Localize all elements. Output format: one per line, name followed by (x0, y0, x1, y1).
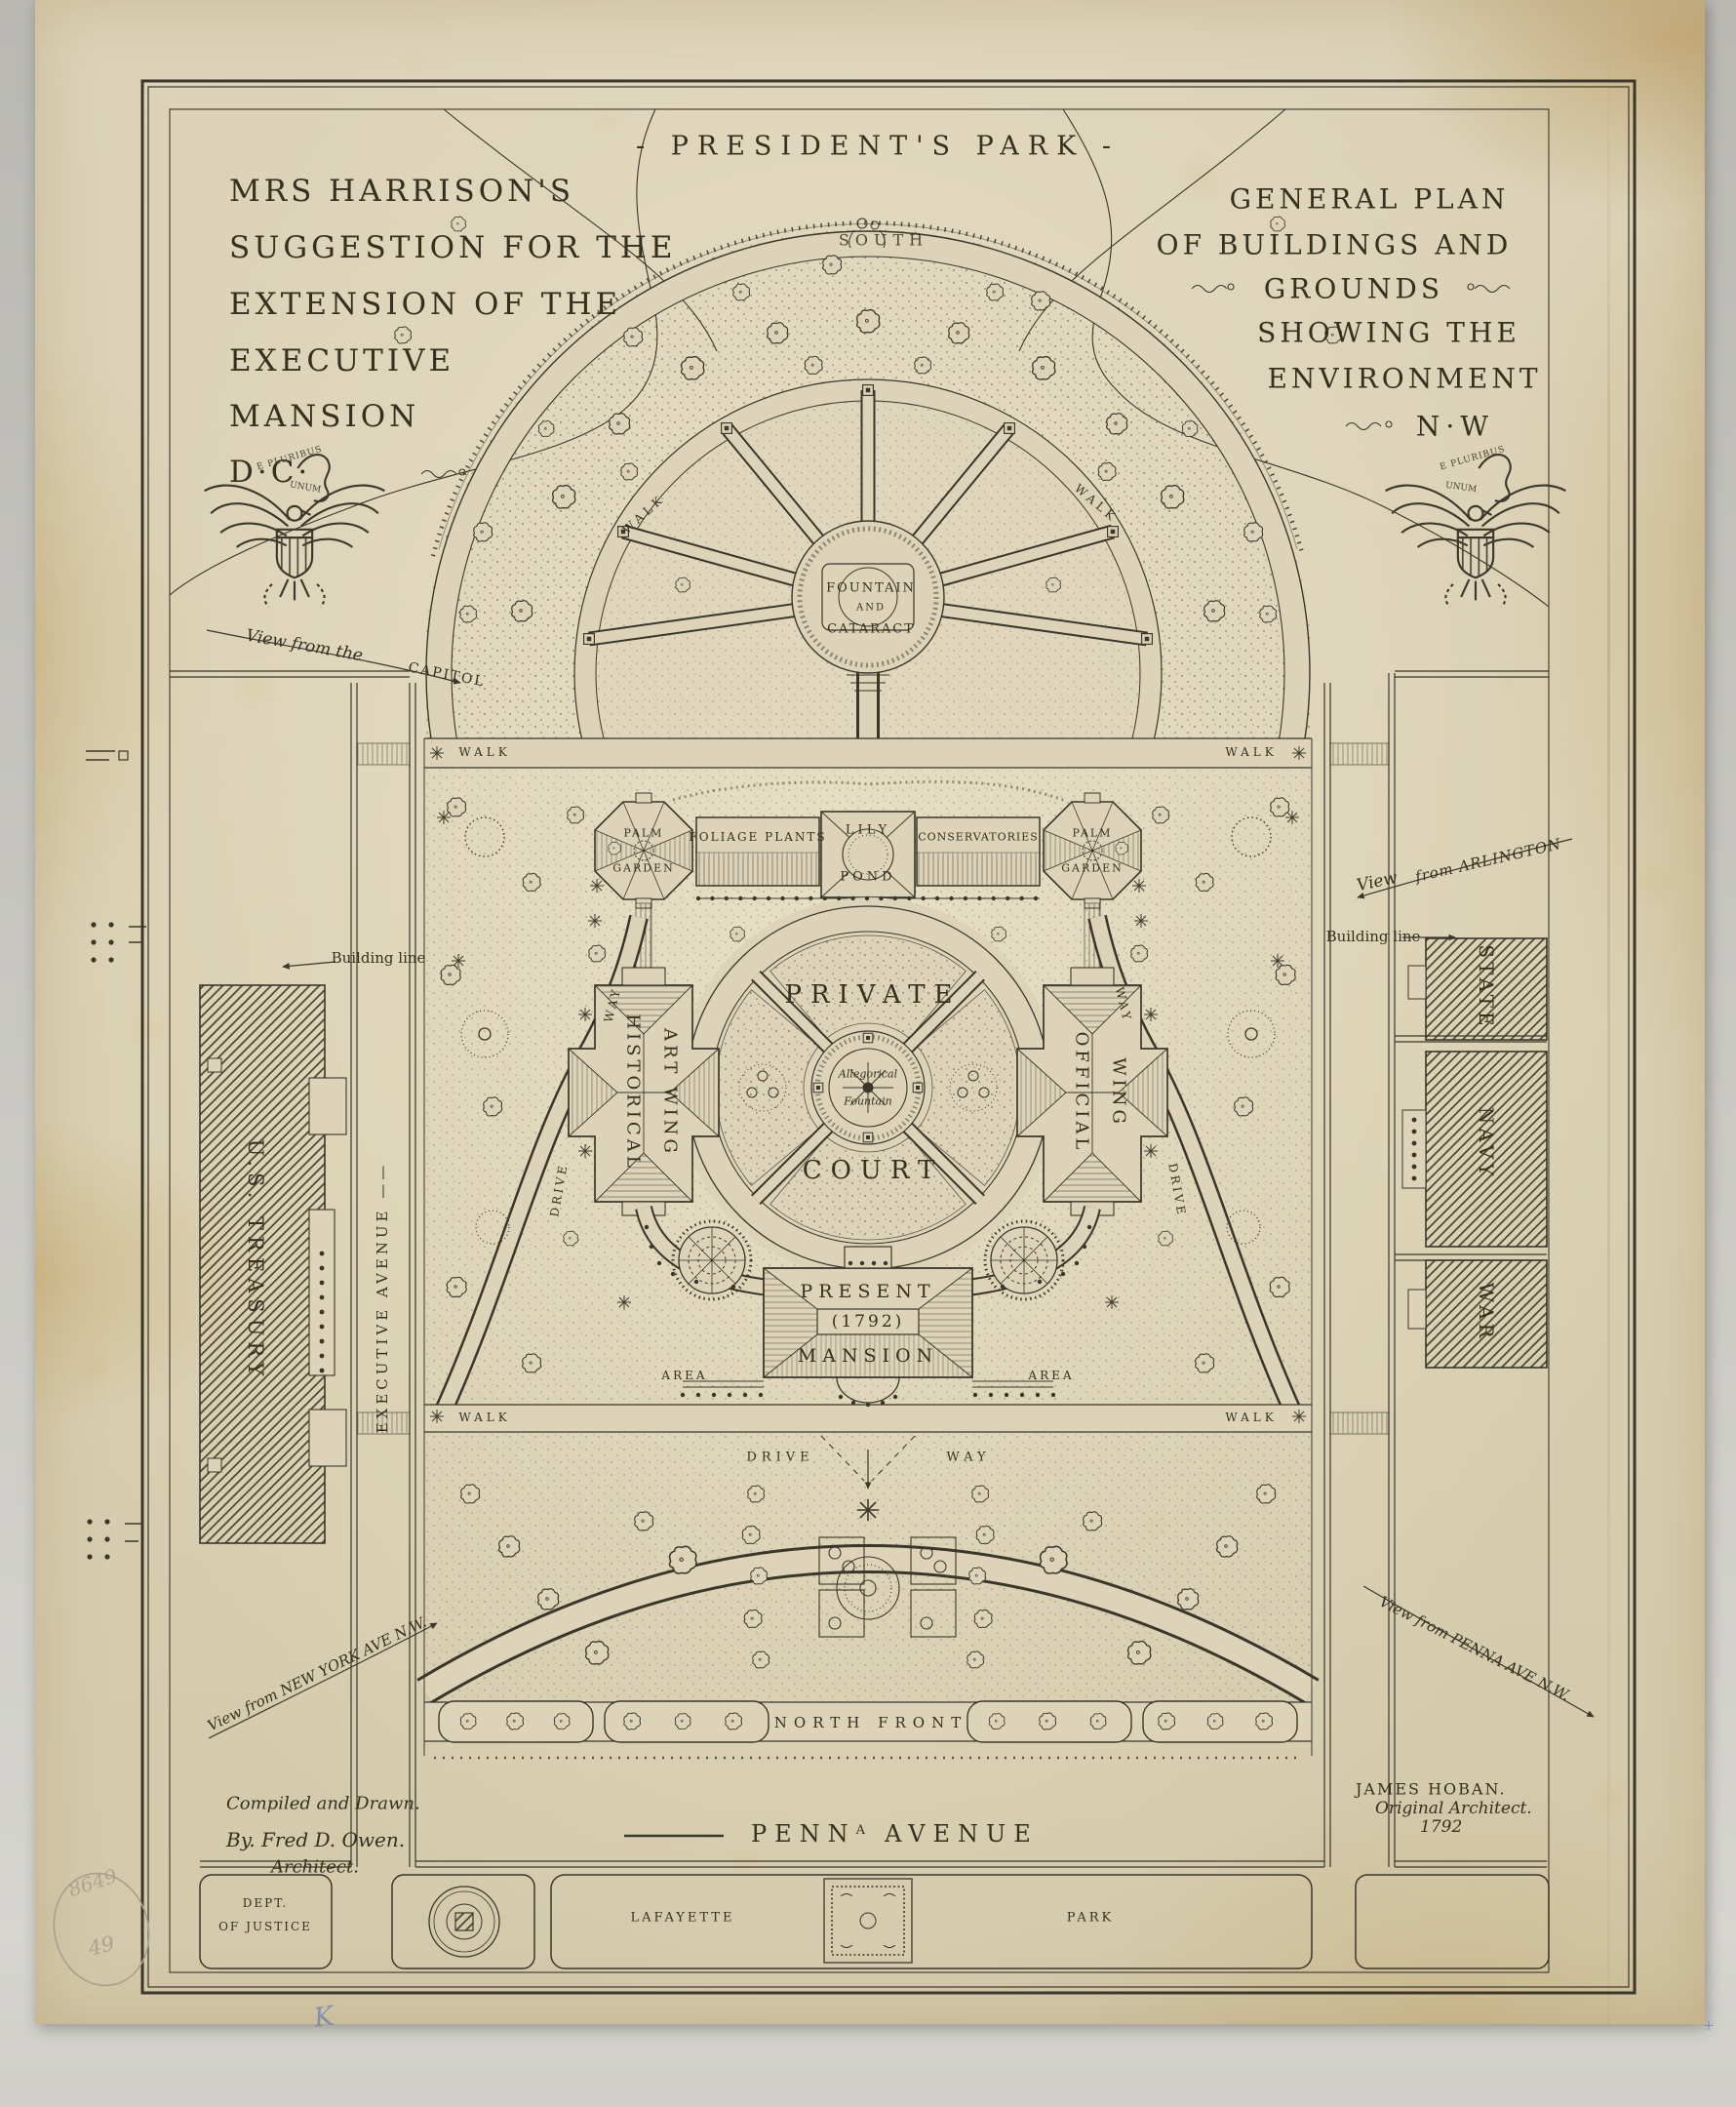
title-left-line-2: SUGGESTION FOR THE (229, 230, 677, 265)
walk-label-lower-east: WALK (1225, 1411, 1277, 1424)
upper-cross-walk (424, 738, 1312, 768)
navy-label: NAVY (1475, 1107, 1498, 1180)
north-front-label: NORTH FRONT (774, 1714, 967, 1731)
lafayette-parterre (824, 1879, 912, 1963)
us-treasury-label: U.S. TREASURY (244, 1139, 267, 1382)
allegorical-label-1: Allegorical (839, 1068, 897, 1081)
bottom-blocks (200, 1875, 1549, 1968)
credit-compiled-1: Compiled and Drawn. (226, 1794, 420, 1814)
credit-compiled-3: Architect. (271, 1857, 359, 1878)
war-label: WAR (1475, 1282, 1498, 1341)
lafayette-label: LAFAYETTE (631, 1911, 735, 1926)
fountain-label-3: CATARACT (827, 622, 915, 637)
credit-hoban-3: 1792 (1420, 1817, 1462, 1837)
statue-circle (429, 1887, 499, 1957)
year-label: (1792) (832, 1312, 905, 1332)
penna-prefix: PENN (751, 1820, 856, 1848)
state-label: STATE (1475, 944, 1498, 1029)
executive-avenue-label: EXECUTIVE AVENUE —— (374, 1162, 391, 1434)
lower-cross-walk (424, 1405, 1312, 1432)
pond-label: POND (840, 870, 895, 885)
eagle-emblem-east (1386, 455, 1566, 607)
credit-hoban-1: JAMES HOBAN. (1356, 1780, 1507, 1799)
justice-label-1: DEPT. (243, 1896, 289, 1910)
page-title: - PRESIDENT'S PARK - (636, 132, 1120, 162)
penna-suffix: AVENUE (885, 1820, 1039, 1848)
title-right-line-3: GROUNDS (1264, 273, 1443, 305)
credit-hoban-2: Original Architect. (1375, 1799, 1532, 1818)
title-left-line-3: EXTENSION OF THE (229, 287, 621, 322)
private-label: PRIVATE (784, 980, 961, 1010)
title-right-line-2: OF BUILDINGS AND (1157, 229, 1513, 261)
justice-label-2: OF JUSTICE (218, 1920, 312, 1933)
conservatories-label: CONSERVATORIES (918, 831, 1039, 844)
area-west: AREA (661, 1369, 707, 1382)
lily-label: LILY (846, 823, 890, 838)
fountain-label-1: FOUNTAIN (826, 581, 916, 596)
garden-east: GARDEN (1061, 862, 1124, 875)
art-wing-label: ART WING (660, 1028, 681, 1157)
scanned-plan: - PRESIDENT'S PARK - SOUTH MRS HARRISON'… (0, 0, 1736, 2107)
wing-label: WING (1109, 1057, 1129, 1128)
title-right-line-4: SHOWING THE (1257, 317, 1520, 349)
way-north: WAY (946, 1451, 990, 1465)
south-label: SOUTH (839, 231, 928, 250)
area-east: AREA (1028, 1369, 1074, 1382)
greenhouse-foliage-plants (696, 817, 819, 886)
credit-compiled-2: By. Fred D. Owen. (226, 1828, 405, 1851)
walk-label-upper-west: WALK (458, 745, 510, 759)
title-right-line-1: GENERAL PLAN (1230, 183, 1510, 216)
historical-label: HISTORICAL (623, 1014, 644, 1171)
walk-label-upper-east: WALK (1225, 745, 1277, 759)
garden-west: GARDEN (612, 862, 675, 875)
greenhouse-conservatories (917, 817, 1040, 886)
palm-east: PALM (1073, 827, 1113, 840)
treasury-building (200, 985, 346, 1543)
title-left-line-1: MRS HARRISON'S (229, 174, 574, 209)
blue-mark: K (312, 2001, 335, 2034)
east-block (1356, 1875, 1549, 1968)
title-left-line-4: EXECUTIVE (229, 343, 454, 378)
title-right-line-5: ENVIRONMENT (1267, 363, 1541, 395)
drive-north: DRIVE (746, 1451, 813, 1465)
foliage-plants-label: FOLIAGE PLANTS (689, 830, 826, 844)
court-label: COURT (803, 1156, 944, 1185)
private-court (678, 897, 1058, 1278)
palm-west: PALM (624, 827, 664, 840)
title-right-line-6: N·W (1416, 411, 1494, 443)
fountain-label-2: AND (856, 603, 886, 614)
building-line-east: Building line (1326, 928, 1421, 945)
lafayette-park-label: PARK (1067, 1911, 1114, 1926)
present-label: PRESENT (800, 1281, 935, 1302)
title-left-line-5: MANSION (229, 399, 419, 434)
walk-label-lower-west: WALK (458, 1411, 510, 1424)
building-line-west: Building line (332, 949, 426, 967)
penna-superscript: A (856, 1823, 867, 1838)
allegorical-label-2: Fountain (844, 1095, 891, 1108)
penna-avenue-label: PENN A AVENUE (751, 1820, 1039, 1848)
mansion-label: MANSION (798, 1345, 939, 1367)
corner-mark: + (1703, 2016, 1716, 2034)
official-label: OFFICIAL (1072, 1032, 1092, 1154)
